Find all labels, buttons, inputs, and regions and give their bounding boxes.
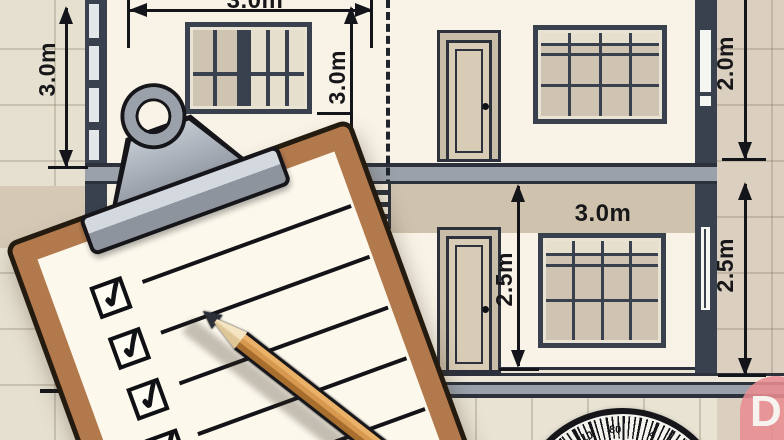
window-pane (541, 46, 568, 53)
window-pane (632, 33, 659, 43)
dimension-label-upper-left-height: 3.0m (34, 42, 61, 96)
window-pane (602, 87, 629, 116)
dimension-tick (722, 158, 766, 161)
window-pane (571, 87, 598, 116)
window-pane (632, 87, 659, 116)
dimension-label-lower-room-width: 3.0m (553, 200, 653, 228)
window-pane (546, 267, 572, 299)
window-pane (632, 46, 659, 53)
dimension-line-right-lower (744, 184, 747, 374)
arrowhead-up (59, 6, 73, 24)
window-pane (604, 256, 630, 264)
window-pane (575, 241, 601, 253)
window-pane (546, 241, 572, 253)
dimension-line-right-upper (744, 0, 747, 158)
window-pane (541, 56, 568, 84)
arrowhead-up (511, 184, 525, 202)
window-pane (632, 267, 658, 299)
window-pane (602, 56, 629, 84)
arrowhead-up (738, 182, 752, 200)
window-pane (546, 302, 572, 340)
window-pane (571, 46, 598, 53)
dimension-tick (718, 374, 766, 377)
right-wall-window-slot (700, 30, 711, 92)
window-pane (604, 241, 630, 253)
window-pane (602, 33, 629, 43)
window-pane (541, 87, 568, 116)
blueprint-illustration: 3.0m 3.0m 3.0m 2.0m 2.5m 2.5m 3.0m D 10 … (0, 0, 784, 440)
window-pane (571, 33, 598, 43)
window-pane (604, 267, 630, 299)
window-pane (575, 267, 601, 299)
window-pane (602, 46, 629, 53)
dimension-label-lower-right-height: 2.5m (712, 238, 739, 292)
window-pane (604, 302, 630, 340)
watermark-letter: D (750, 387, 782, 437)
window-pane (575, 256, 601, 264)
upper-right-window-panes (541, 33, 659, 116)
window-pane (632, 302, 658, 340)
window-pane (575, 302, 601, 340)
window-pane (632, 241, 658, 253)
window-pane (632, 56, 659, 84)
protractor-number: 80 (609, 424, 621, 436)
window-pane (546, 256, 572, 264)
dimension-label-top-width: 3.0m (200, 0, 310, 15)
arrowhead-left (129, 3, 147, 17)
window-pane (632, 256, 658, 264)
right-wall-window-slot-small (700, 96, 711, 106)
dimension-label-upper-right-height: 2.0m (712, 36, 739, 90)
window-pane (541, 33, 568, 43)
checkbox-checked: ✓ (145, 428, 189, 440)
window-pane (571, 56, 598, 84)
upper-door-knob (482, 103, 489, 110)
right-wall-lower-window-mullion (704, 229, 706, 308)
lower-window-panes (546, 241, 658, 340)
